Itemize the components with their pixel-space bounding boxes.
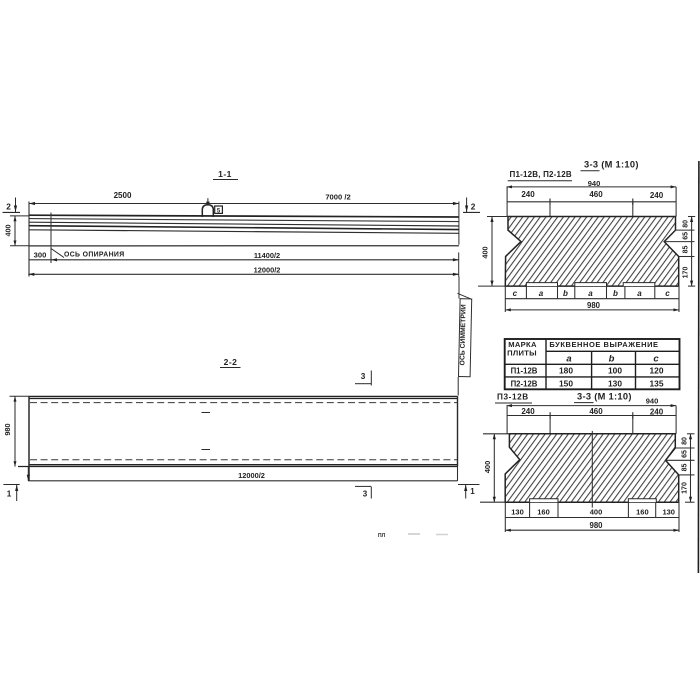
svg-text:65: 65 bbox=[682, 232, 689, 240]
svg-text:12000/2: 12000/2 bbox=[238, 471, 265, 480]
svg-text:П1-12В: П1-12В bbox=[511, 367, 538, 376]
svg-text:85: 85 bbox=[682, 464, 689, 472]
svg-text:400: 400 bbox=[481, 246, 490, 258]
svg-text:2: 2 bbox=[6, 201, 11, 211]
svg-text:c: c bbox=[513, 289, 518, 298]
svg-text:3-3 (М 1:10): 3-3 (М 1:10) bbox=[584, 160, 639, 170]
svg-text:80: 80 bbox=[682, 220, 689, 228]
svg-text:400: 400 bbox=[483, 461, 492, 474]
svg-text:240: 240 bbox=[521, 190, 535, 199]
svg-text:100: 100 bbox=[608, 366, 622, 376]
svg-text:a: a bbox=[588, 289, 593, 298]
svg-text:980: 980 bbox=[587, 301, 601, 310]
svg-text:130: 130 bbox=[511, 507, 524, 516]
svg-text:2: 2 bbox=[471, 202, 476, 212]
svg-text:БУКВЕННОЕ ВЫРАЖЕНИЕ: БУКВЕННОЕ ВЫРАЖЕНИЕ bbox=[549, 340, 658, 349]
svg-text:П1-12В, П2-12В: П1-12В, П2-12В bbox=[510, 170, 572, 179]
svg-text:1: 1 bbox=[7, 489, 12, 498]
svg-text:130: 130 bbox=[662, 507, 675, 516]
svg-text:170: 170 bbox=[681, 482, 688, 494]
svg-text:c: c bbox=[653, 354, 659, 365]
svg-text:7000 /2: 7000 /2 bbox=[325, 192, 350, 201]
svg-text:120: 120 bbox=[650, 366, 664, 376]
svg-text:980: 980 bbox=[3, 423, 12, 435]
svg-text:180: 180 bbox=[559, 366, 573, 376]
svg-text:3: 3 bbox=[361, 372, 366, 381]
svg-text:460: 460 bbox=[589, 190, 603, 199]
svg-text:П2-12В: П2-12В bbox=[511, 379, 538, 388]
svg-text:160: 160 bbox=[636, 507, 649, 516]
svg-text:ОСЬ ОПИРАНИЯ: ОСЬ ОПИРАНИЯ bbox=[64, 252, 125, 259]
svg-text:2-2: 2-2 bbox=[224, 357, 238, 367]
svg-text:80: 80 bbox=[682, 437, 689, 445]
svg-text:300: 300 bbox=[34, 251, 47, 260]
svg-text:135: 135 bbox=[650, 378, 664, 388]
svg-text:12000/2: 12000/2 bbox=[254, 265, 281, 274]
svg-text:400: 400 bbox=[4, 225, 13, 237]
svg-text:a: a bbox=[539, 289, 544, 298]
svg-text:170: 170 bbox=[682, 267, 689, 279]
svg-text:400: 400 bbox=[590, 507, 603, 516]
svg-text:b: b bbox=[613, 289, 618, 298]
svg-text:b: b bbox=[609, 354, 615, 365]
svg-text:940: 940 bbox=[646, 397, 659, 406]
svg-text:1: 1 bbox=[470, 487, 475, 496]
svg-text:240: 240 bbox=[521, 407, 535, 416]
svg-text:460: 460 bbox=[589, 407, 603, 416]
svg-text:ПЛ: ПЛ bbox=[378, 533, 386, 539]
svg-text:a: a bbox=[566, 354, 571, 365]
svg-text:150: 150 bbox=[559, 378, 573, 388]
svg-text:160: 160 bbox=[537, 507, 550, 516]
svg-text:c: c bbox=[665, 289, 670, 298]
svg-text:3-3 (М 1:10): 3-3 (М 1:10) bbox=[577, 391, 632, 401]
svg-text:11400/2: 11400/2 bbox=[254, 251, 280, 260]
svg-text:130: 130 bbox=[608, 378, 622, 388]
svg-text:240: 240 bbox=[650, 191, 664, 200]
svg-text:ПЛИТЫ: ПЛИТЫ bbox=[507, 348, 537, 357]
svg-text:a: a bbox=[637, 289, 642, 298]
svg-text:b: b bbox=[563, 289, 568, 298]
svg-text:2500: 2500 bbox=[114, 191, 132, 200]
svg-text:1-1: 1-1 bbox=[218, 169, 232, 179]
svg-text:85: 85 bbox=[682, 246, 689, 254]
svg-text:П3-12В: П3-12В bbox=[497, 393, 529, 402]
svg-text:980: 980 bbox=[589, 521, 603, 530]
svg-text:65: 65 bbox=[682, 450, 689, 458]
svg-text:3: 3 bbox=[363, 490, 368, 499]
svg-text:ОСЬ СИММЕТРИИ: ОСЬ СИММЕТРИИ bbox=[459, 304, 467, 365]
